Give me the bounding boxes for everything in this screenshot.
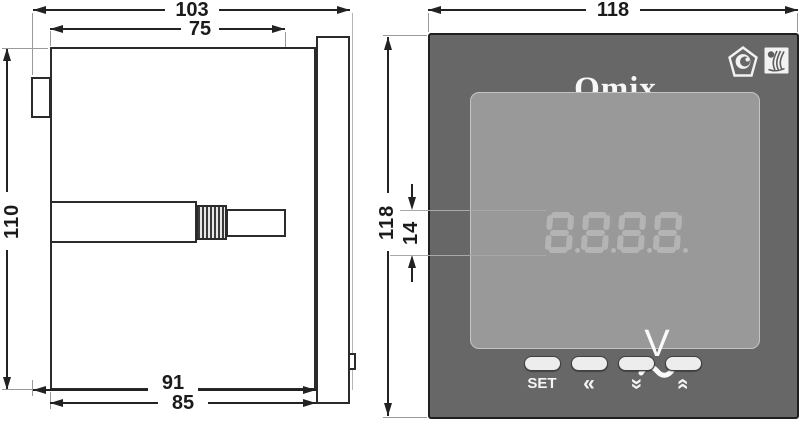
decimal-point xyxy=(683,248,688,253)
dim-behind-panel-label: 91 xyxy=(148,373,198,392)
arrowhead xyxy=(384,37,392,50)
extension-line xyxy=(2,48,48,49)
seven-segment-display xyxy=(546,212,690,253)
set-button-label: SET xyxy=(518,373,566,395)
arrowhead xyxy=(303,386,316,394)
arrowhead xyxy=(428,6,441,14)
up-button[interactable] xyxy=(665,356,702,371)
arrowhead xyxy=(303,399,316,407)
decimal-point xyxy=(647,248,652,253)
dimension-line xyxy=(411,184,413,198)
down-button[interactable] xyxy=(618,356,655,371)
arrowhead xyxy=(33,6,46,14)
dim-bezel-height-label: 118 xyxy=(376,193,400,251)
extension-line xyxy=(50,31,51,46)
panel-clamp-tab xyxy=(348,353,356,370)
arrowhead xyxy=(33,386,46,394)
leader-line xyxy=(390,255,546,256)
arrowhead xyxy=(337,6,350,14)
arrowhead xyxy=(384,403,392,416)
chevron-down-icon: « xyxy=(612,373,660,397)
cert-pentagon-icon xyxy=(728,46,758,82)
extension-line xyxy=(383,417,427,418)
dim-body-depth-label: 85 xyxy=(158,393,208,414)
dim-case-depth-label: 75 xyxy=(181,19,219,40)
arrowhead xyxy=(408,197,416,210)
dim-bezel-width-label: 118 xyxy=(586,0,640,21)
decimal-point xyxy=(611,248,616,253)
chevron-up-icon: « xyxy=(659,373,707,397)
arrowhead xyxy=(408,255,416,268)
arrowhead xyxy=(50,399,63,407)
extension-line xyxy=(383,35,427,36)
left-button[interactable] xyxy=(571,356,608,371)
front-bezel-side xyxy=(316,36,350,404)
digit xyxy=(654,212,690,253)
dim-digit-height-label: 14 xyxy=(400,211,422,255)
arrowhead xyxy=(272,25,285,33)
arrowhead xyxy=(3,48,11,61)
arrowhead xyxy=(50,25,63,33)
extension-line xyxy=(428,13,429,32)
terminal-screw xyxy=(196,205,227,240)
maker-logo-icon xyxy=(764,47,789,79)
terminal-bar xyxy=(50,201,197,243)
chevron-left-icon: « xyxy=(565,373,613,397)
technical-drawing: 103 75 110 91 85 118 118 xyxy=(0,0,800,422)
digit xyxy=(618,212,654,253)
set-button[interactable] xyxy=(524,356,561,371)
extension-line xyxy=(32,13,33,75)
extension-line xyxy=(352,13,353,390)
extension-line xyxy=(2,389,33,390)
dimension-line xyxy=(50,28,285,30)
decimal-point xyxy=(575,248,580,253)
digit xyxy=(582,212,618,253)
digit xyxy=(546,212,582,253)
terminal-pin xyxy=(226,209,286,237)
rear-connector xyxy=(31,77,51,118)
dim-height-label: 110 xyxy=(1,192,25,250)
dimension-line xyxy=(411,267,413,282)
extension-line xyxy=(797,13,798,32)
